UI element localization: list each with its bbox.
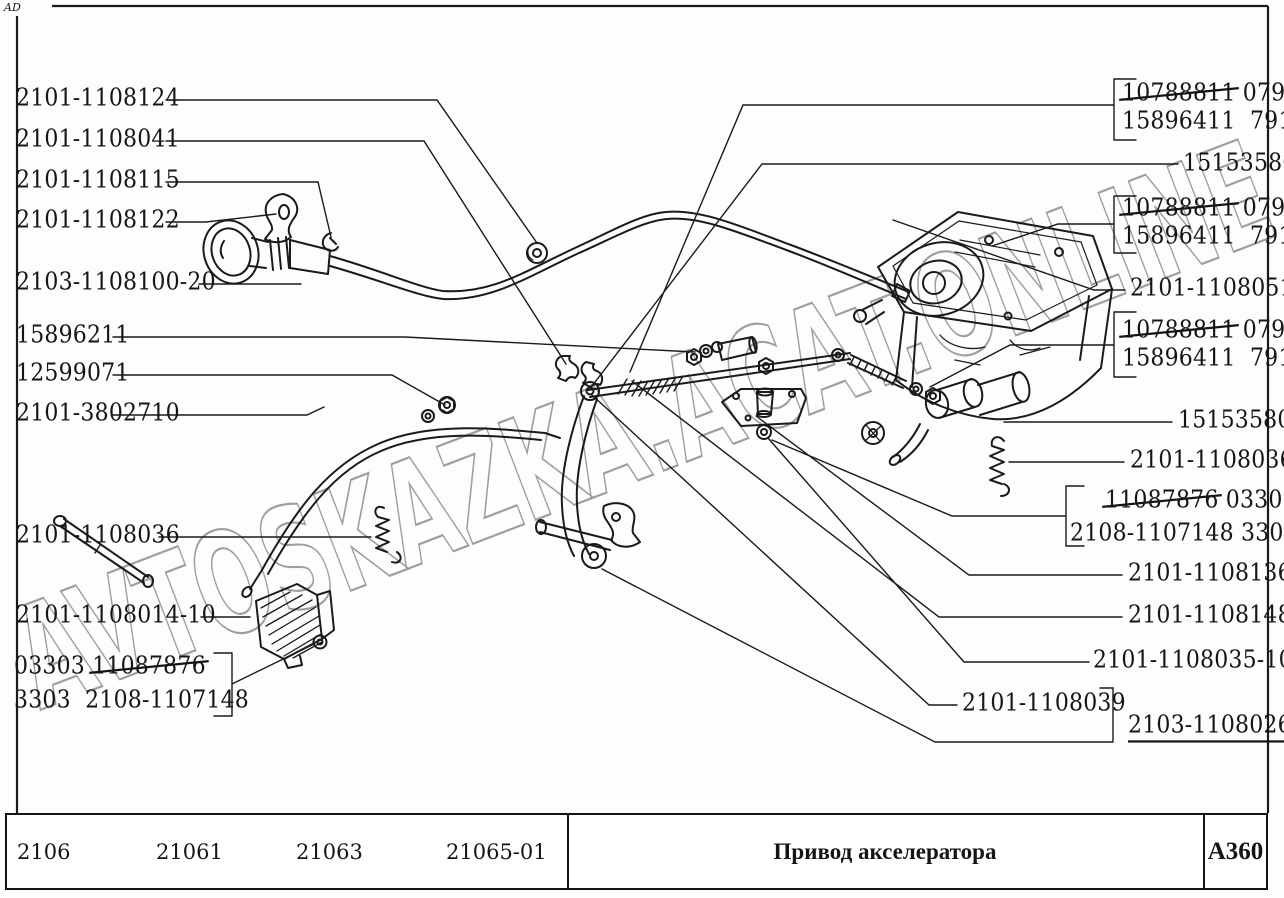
watermark: AVTOSKAZKA.ACAT.ONLINE: [0, 111, 1284, 742]
part-number: 15153580: [1178, 409, 1284, 434]
part-number: 0791: [1236, 316, 1284, 344]
return-spring-right-drawing: [990, 437, 1009, 496]
part-number-superseded: 10788811: [1122, 197, 1236, 222]
part-number: 03303: [14, 652, 92, 680]
part-number: 0791: [1236, 194, 1284, 222]
part-number: 0791: [1236, 79, 1284, 107]
part-number: 2101-1108041: [16, 128, 180, 153]
part-number-superseded: 10788811: [1122, 82, 1236, 107]
part-number: 12599071: [16, 362, 130, 387]
part-number-assembly: 2103-1108026: [1128, 713, 1284, 742]
part-number-group: 10788811 0791: [1122, 197, 1284, 222]
part-number-group: 11087876 03303: [1105, 489, 1284, 514]
grommet-drawing: [527, 243, 547, 263]
part-number: 15896411 791: [1122, 347, 1284, 372]
part-number: 2101-1108115: [16, 169, 180, 194]
part-number: 03303: [1219, 486, 1284, 514]
footer-model: 21061: [156, 840, 223, 864]
footer-model: 2106: [17, 840, 70, 864]
part-number: 2101-1108124: [16, 87, 180, 112]
part-number: 2101-1108036: [1130, 449, 1284, 474]
part-number: 15153580: [1183, 152, 1284, 177]
diagram-title: Привод акселератора: [567, 839, 1203, 865]
part-number: 3303 2108-1107148: [14, 689, 249, 714]
part-number: 2101-1108148: [1128, 604, 1284, 629]
part-number: 2101-1108014-10: [16, 604, 216, 629]
part-number-group: 10788811 0791: [1122, 319, 1284, 344]
diagram-canvas: AVTOSKAZKA.ACAT.ONLINE: [0, 0, 1284, 898]
part-number: 2101-1108122: [16, 209, 180, 234]
part-number: 2101-1108051: [1130, 277, 1284, 302]
footer-table: 2106 21061 21063 21065-01 Привод акселер…: [5, 813, 1268, 890]
part-number-superseded: 11087876: [1105, 489, 1219, 514]
part-number: 15896211: [16, 324, 130, 349]
part-number: 2101-3802710: [16, 402, 180, 427]
part-number-group: 10788811 0791: [1122, 82, 1284, 107]
footer-model: 21065-01: [446, 840, 547, 864]
part-number: 2103-1108100-20: [16, 271, 216, 296]
footer-model: 21063: [296, 840, 363, 864]
part-number-group: 03303 11087876: [14, 655, 206, 680]
part-number: 2108-1107148 3303: [1070, 522, 1284, 547]
part-number: 2101-1108136: [1128, 562, 1284, 587]
part-number: 15896411 791: [1122, 225, 1284, 250]
part-number-superseded: 10788811: [1122, 319, 1236, 344]
part-number: 15896411 791: [1122, 110, 1284, 135]
catalog-page: AVTOSKAZKA.ACAT.ONLINE: [0, 0, 1284, 898]
part-number: 2101-1108039: [962, 692, 1126, 717]
page-code: A360: [1203, 838, 1268, 866]
part-number-superseded: 11087876: [92, 655, 206, 680]
part-number: 2101-1108035-10: [1093, 649, 1284, 674]
corner-mark: AD: [4, 1, 21, 14]
part-number: 2101-1108036: [16, 524, 180, 549]
svg-text:AVTOSKAZKA.ACAT.ONLINE: AVTOSKAZKA.ACAT.ONLINE: [0, 111, 1284, 742]
